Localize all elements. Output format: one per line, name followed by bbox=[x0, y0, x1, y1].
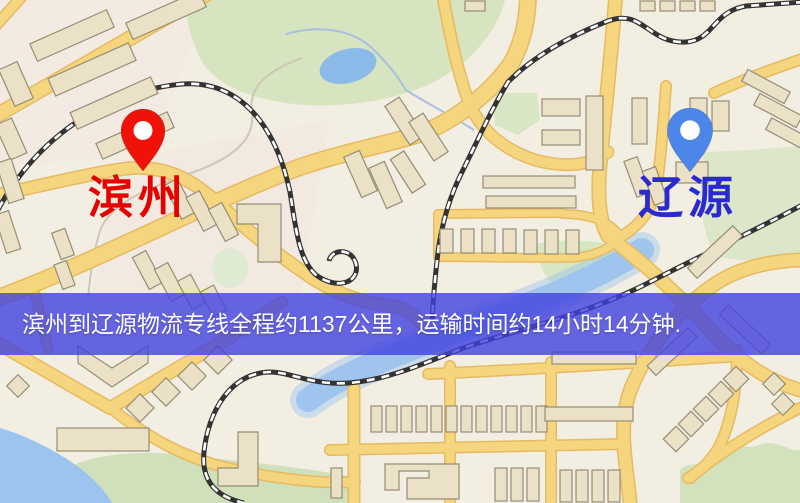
map-canvas bbox=[0, 0, 800, 503]
destination-pin-icon bbox=[667, 108, 713, 172]
origin-label: 滨州 bbox=[88, 176, 188, 221]
origin-pin-icon bbox=[121, 109, 165, 171]
route-banner: 滨州到辽源物流专线全程约1137公里，运输时间约14小时14分钟. bbox=[0, 293, 800, 355]
static-route-map: 滨州 辽源 滨州到辽源物流专线全程约1137公里，运输时间约14小时14分钟. bbox=[0, 0, 800, 503]
destination-label: 辽源 bbox=[638, 176, 738, 221]
route-banner-text: 滨州到辽源物流专线全程约1137公里，运输时间约14小时14分钟. bbox=[22, 311, 681, 337]
